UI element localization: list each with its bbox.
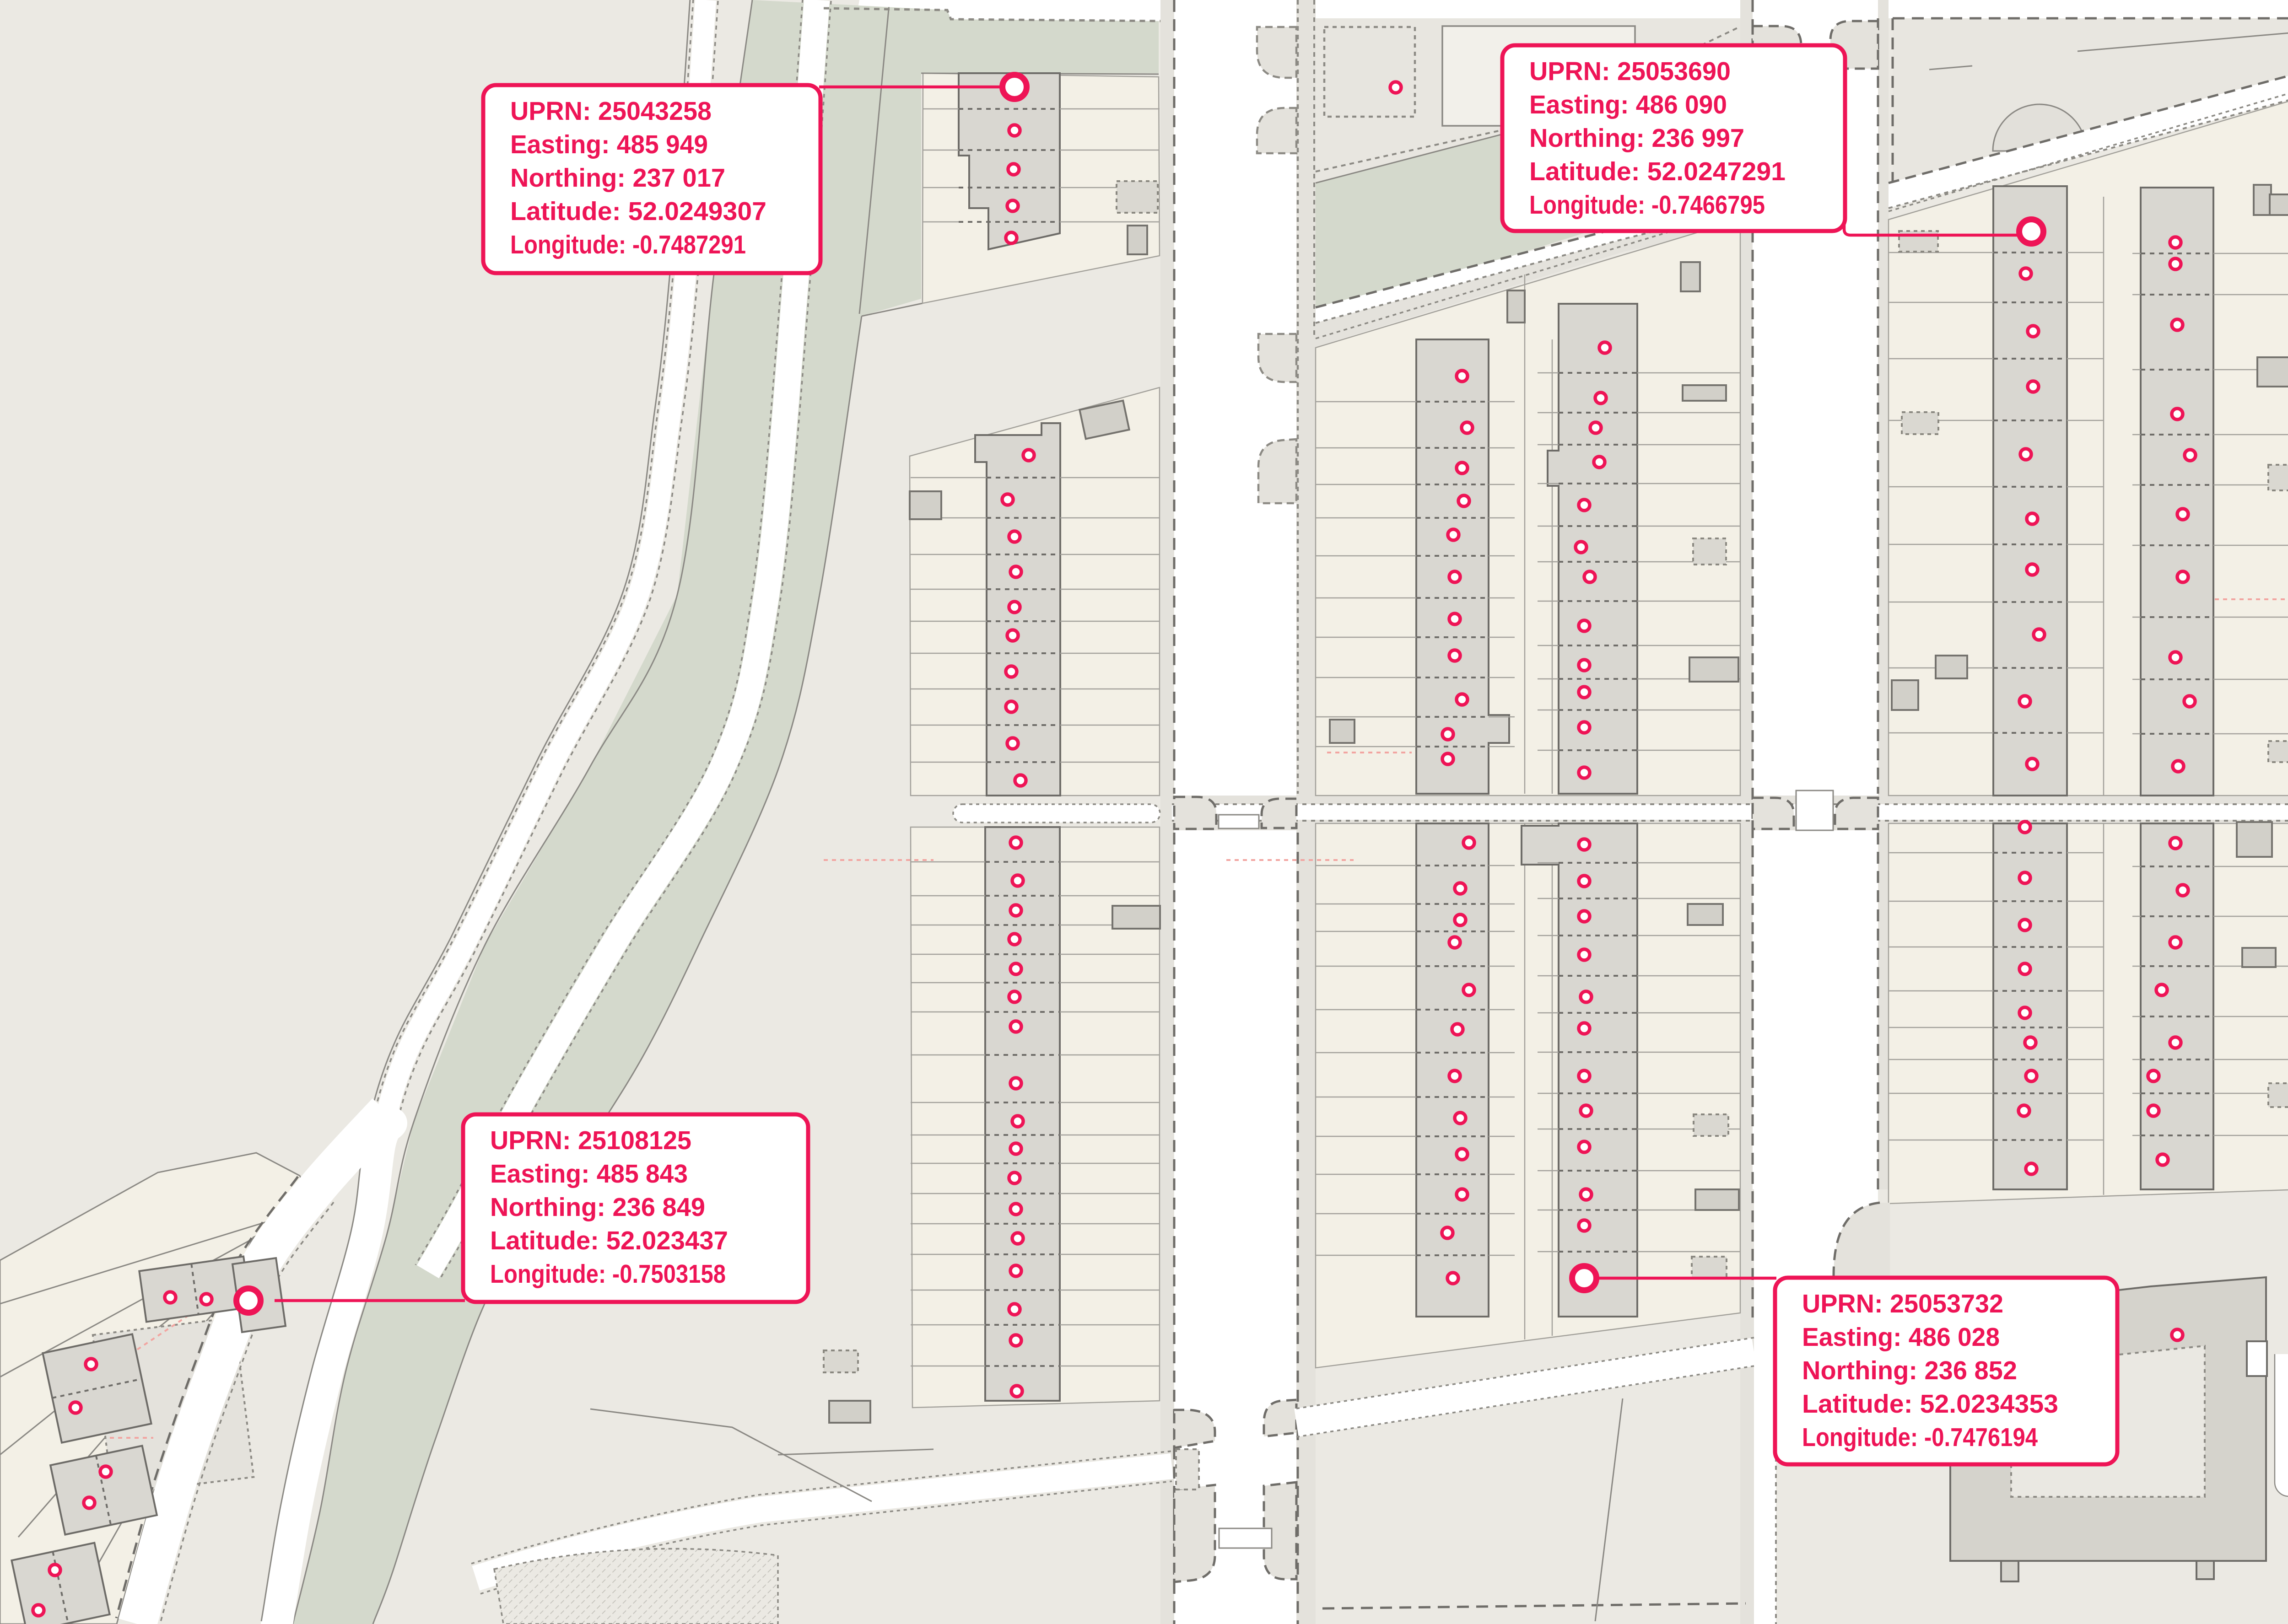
svg-text:Northing: 237 017: Northing: 237 017	[510, 163, 725, 193]
svg-text:Northing: 236 852: Northing: 236 852	[1802, 1356, 2017, 1385]
svg-text:UPRN: 25053690: UPRN: 25053690	[1529, 57, 1731, 86]
svg-text:Latitude: 52.0249307: Latitude: 52.0249307	[510, 197, 766, 226]
svg-text:Northing: 236 849: Northing: 236 849	[490, 1193, 705, 1222]
svg-text:Longitude: -0.7487291: Longitude: -0.7487291	[510, 230, 746, 259]
svg-text:Latitude: 52.0247291: Latitude: 52.0247291	[1529, 157, 1786, 186]
svg-text:Northing: 236 997: Northing: 236 997	[1529, 124, 1744, 153]
svg-text:UPRN: 25108125: UPRN: 25108125	[490, 1126, 691, 1155]
svg-text:UPRN: 25053732: UPRN: 25053732	[1802, 1289, 2003, 1318]
svg-text:Longitude: -0.7476194: Longitude: -0.7476194	[1802, 1423, 2038, 1452]
svg-text:Easting: 485 949: Easting: 485 949	[510, 130, 708, 159]
svg-text:Latitude: 52.0234353: Latitude: 52.0234353	[1802, 1389, 2058, 1419]
svg-text:Easting: 486 090: Easting: 486 090	[1529, 90, 1727, 119]
svg-text:Easting: 486 028: Easting: 486 028	[1802, 1323, 2000, 1352]
svg-text:Easting: 485 843: Easting: 485 843	[490, 1159, 688, 1188]
svg-text:Latitude: 52.023437: Latitude: 52.023437	[490, 1226, 728, 1255]
svg-text:Longitude: -0.7466795: Longitude: -0.7466795	[1529, 190, 1765, 220]
svg-text:Longitude: -0.7503158: Longitude: -0.7503158	[490, 1259, 726, 1289]
svg-text:UPRN: 25043258: UPRN: 25043258	[510, 97, 712, 126]
